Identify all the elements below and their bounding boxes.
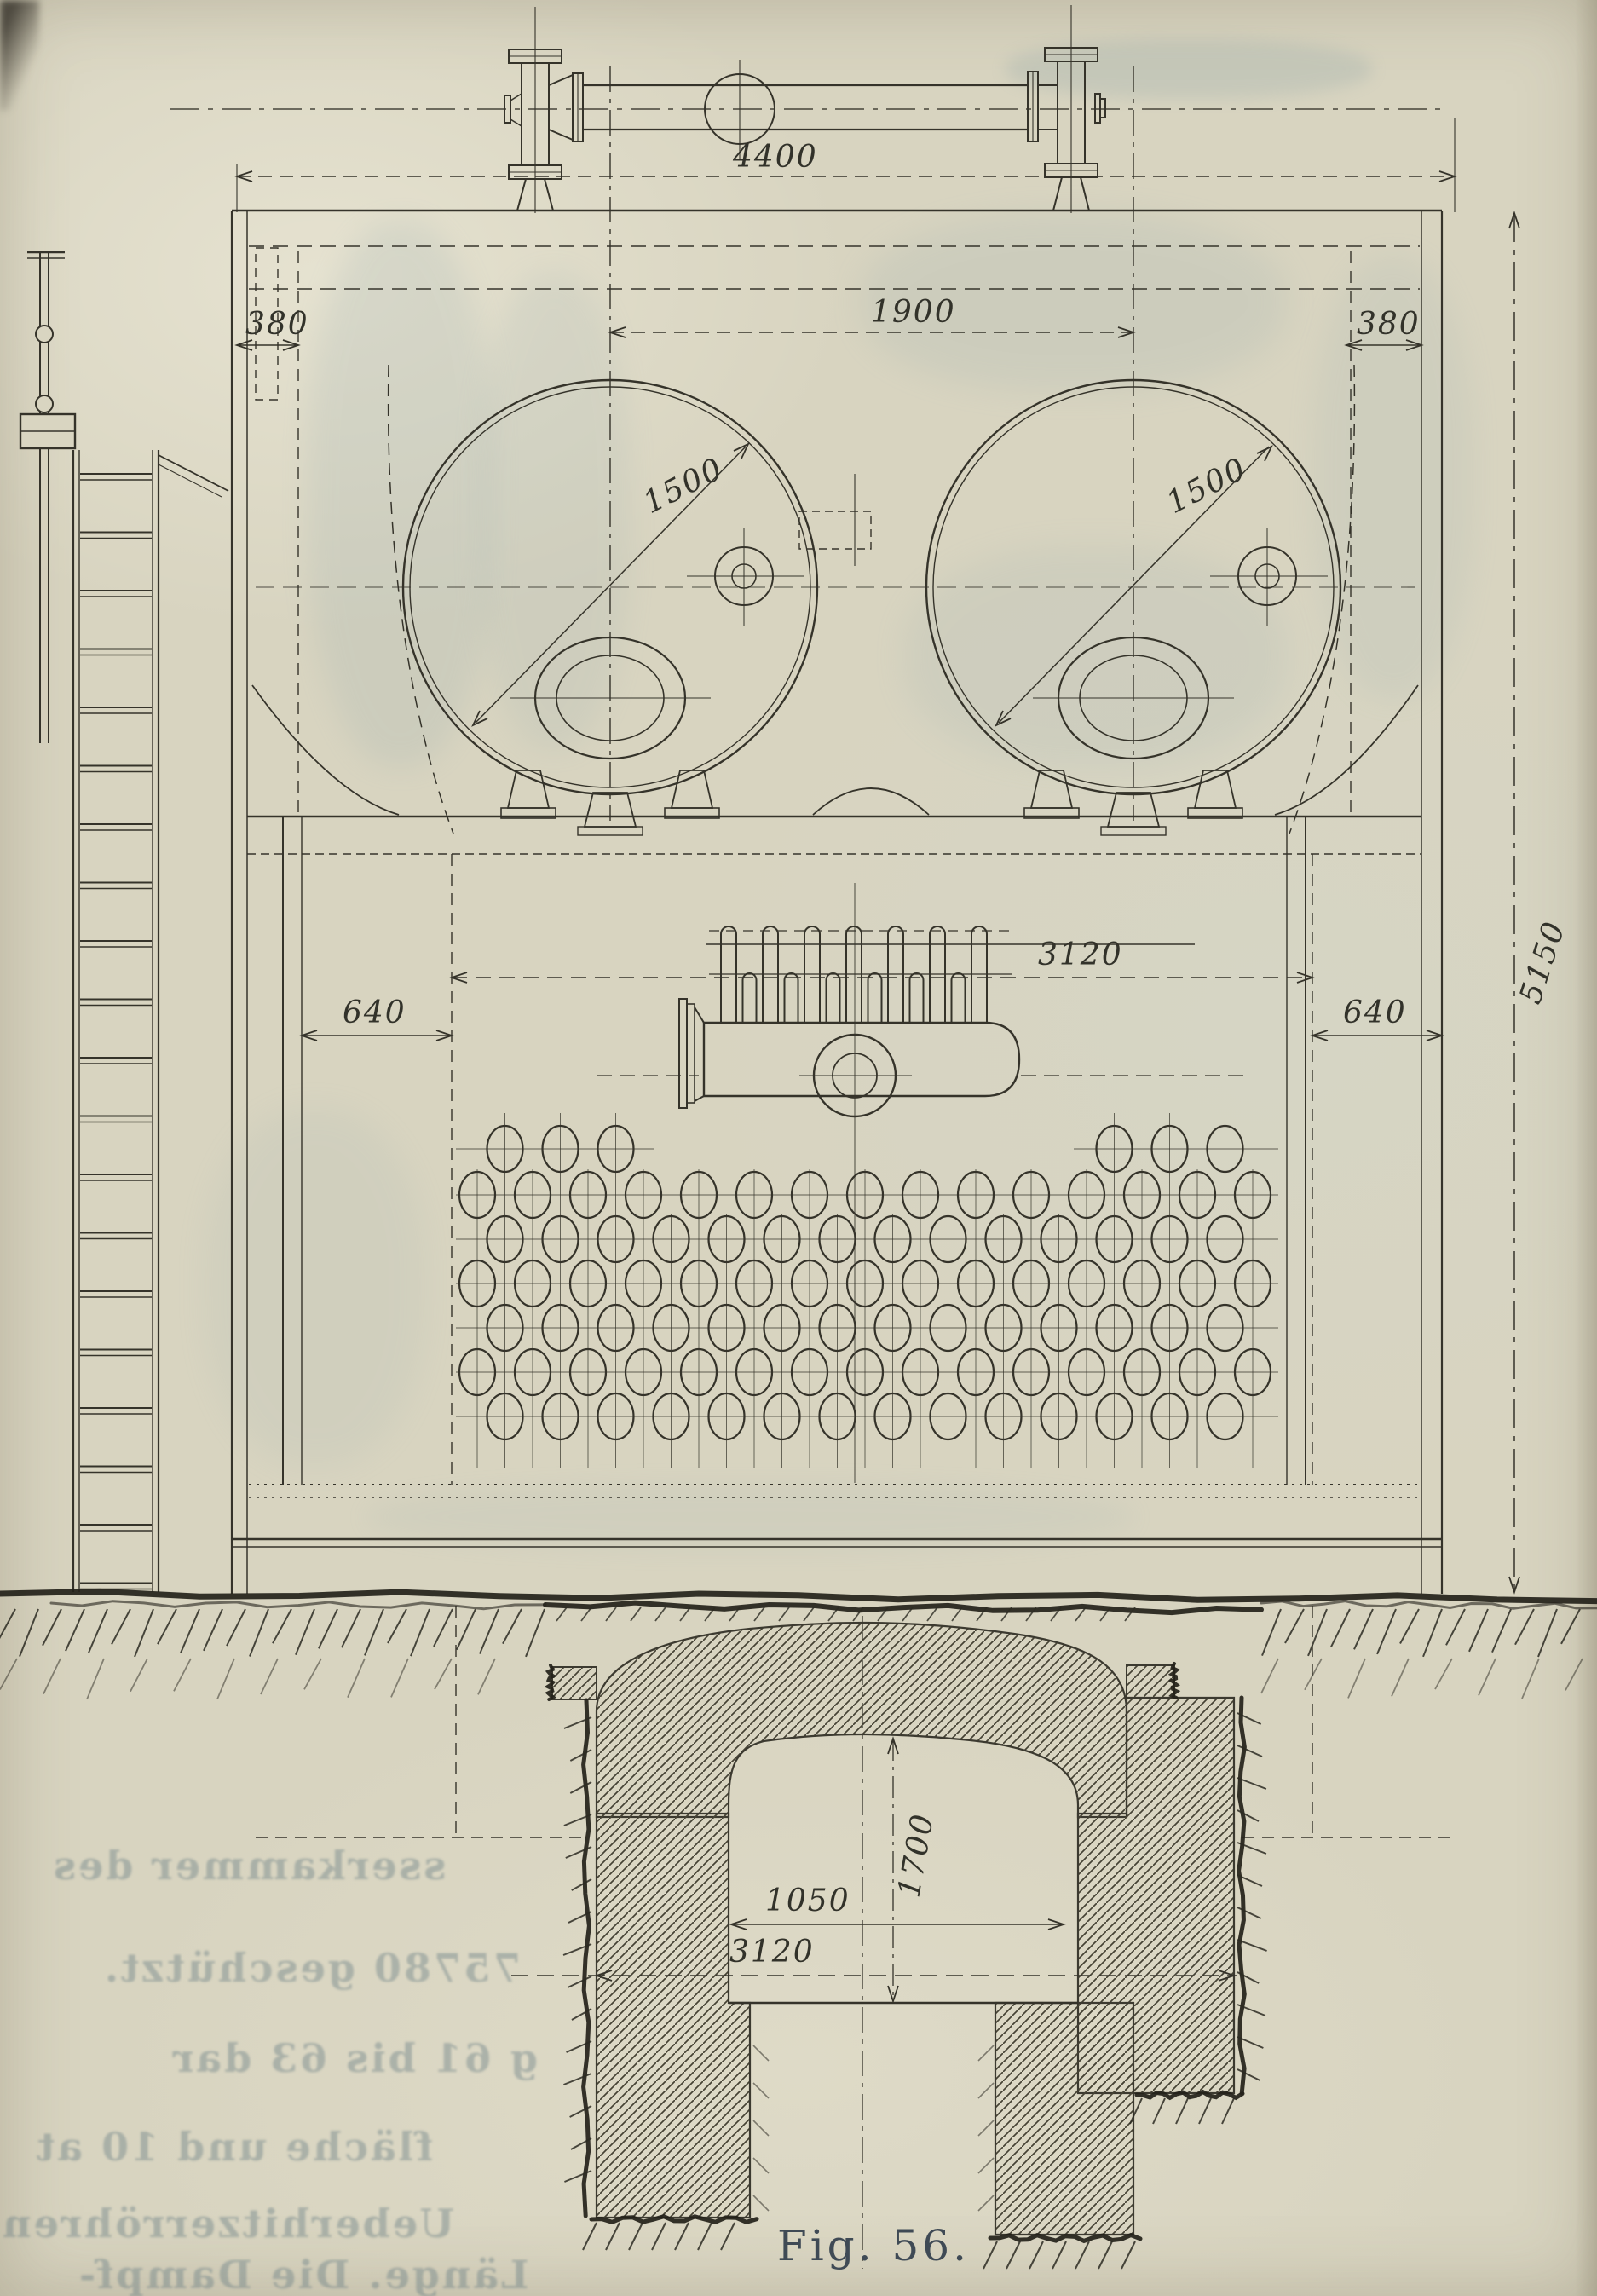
dimension-1700: 1700 [888,1739,941,2001]
dimension-4400: 4400 [237,118,1455,212]
pit-right-leg-masonry [995,2003,1133,2235]
superheater [597,926,1246,1116]
dimension-5150: 5150 [1509,213,1572,1592]
dimension-label-offset-left: 380 [245,307,309,342]
dimension-label-tube-bank-width: 3120 [1038,937,1123,972]
pit-step-right [1127,1665,1174,1698]
boiler-elevation-drawing: 4400 [0,0,1597,2296]
dimension-label-pit-chamber-height: 1700 [891,1810,941,1900]
figure-caption: Fig. 56. [777,2221,970,2270]
ladder-rungs [80,474,152,1589]
dimension-label-overall-height: 5150 [1513,916,1573,1007]
pit-arch-masonry [597,1623,1127,1817]
center-lines [256,66,1415,1483]
dimension-label-side-flue-right: 640 [1343,995,1407,1030]
dimension-label-drum-spacing: 1900 [871,295,956,330]
water-tube-bank [456,1113,1278,1468]
pit-left-wall-masonry [597,1814,750,2218]
dimension-640-right: 640 [1312,995,1442,1041]
ladder [20,252,228,1592]
pipe-tee-left [504,7,573,213]
dimension-label-steam-pipe-length: 4400 [732,140,818,175]
steam-pipe-assembly [170,5,1449,213]
dimension-label-pit-opening-width: 1050 [765,1884,850,1918]
scanned-book-page: sserkammer des 75780 geschützt. g 61 bis… [0,0,1597,2296]
dimension-label-side-flue-left: 640 [343,995,406,1030]
foundation-pit: 1050 3120 1700 [256,1606,1453,2269]
dimension-1900: 1900 [610,295,1133,337]
dimension-640-left: 640 [302,995,452,1041]
dimension-label-pit-overall-width: 3120 [729,1935,815,1970]
dimension-380-right: 380 [1346,307,1421,350]
dimension-label-offset-right: 380 [1357,307,1421,342]
pit-step-left [552,1667,597,1699]
